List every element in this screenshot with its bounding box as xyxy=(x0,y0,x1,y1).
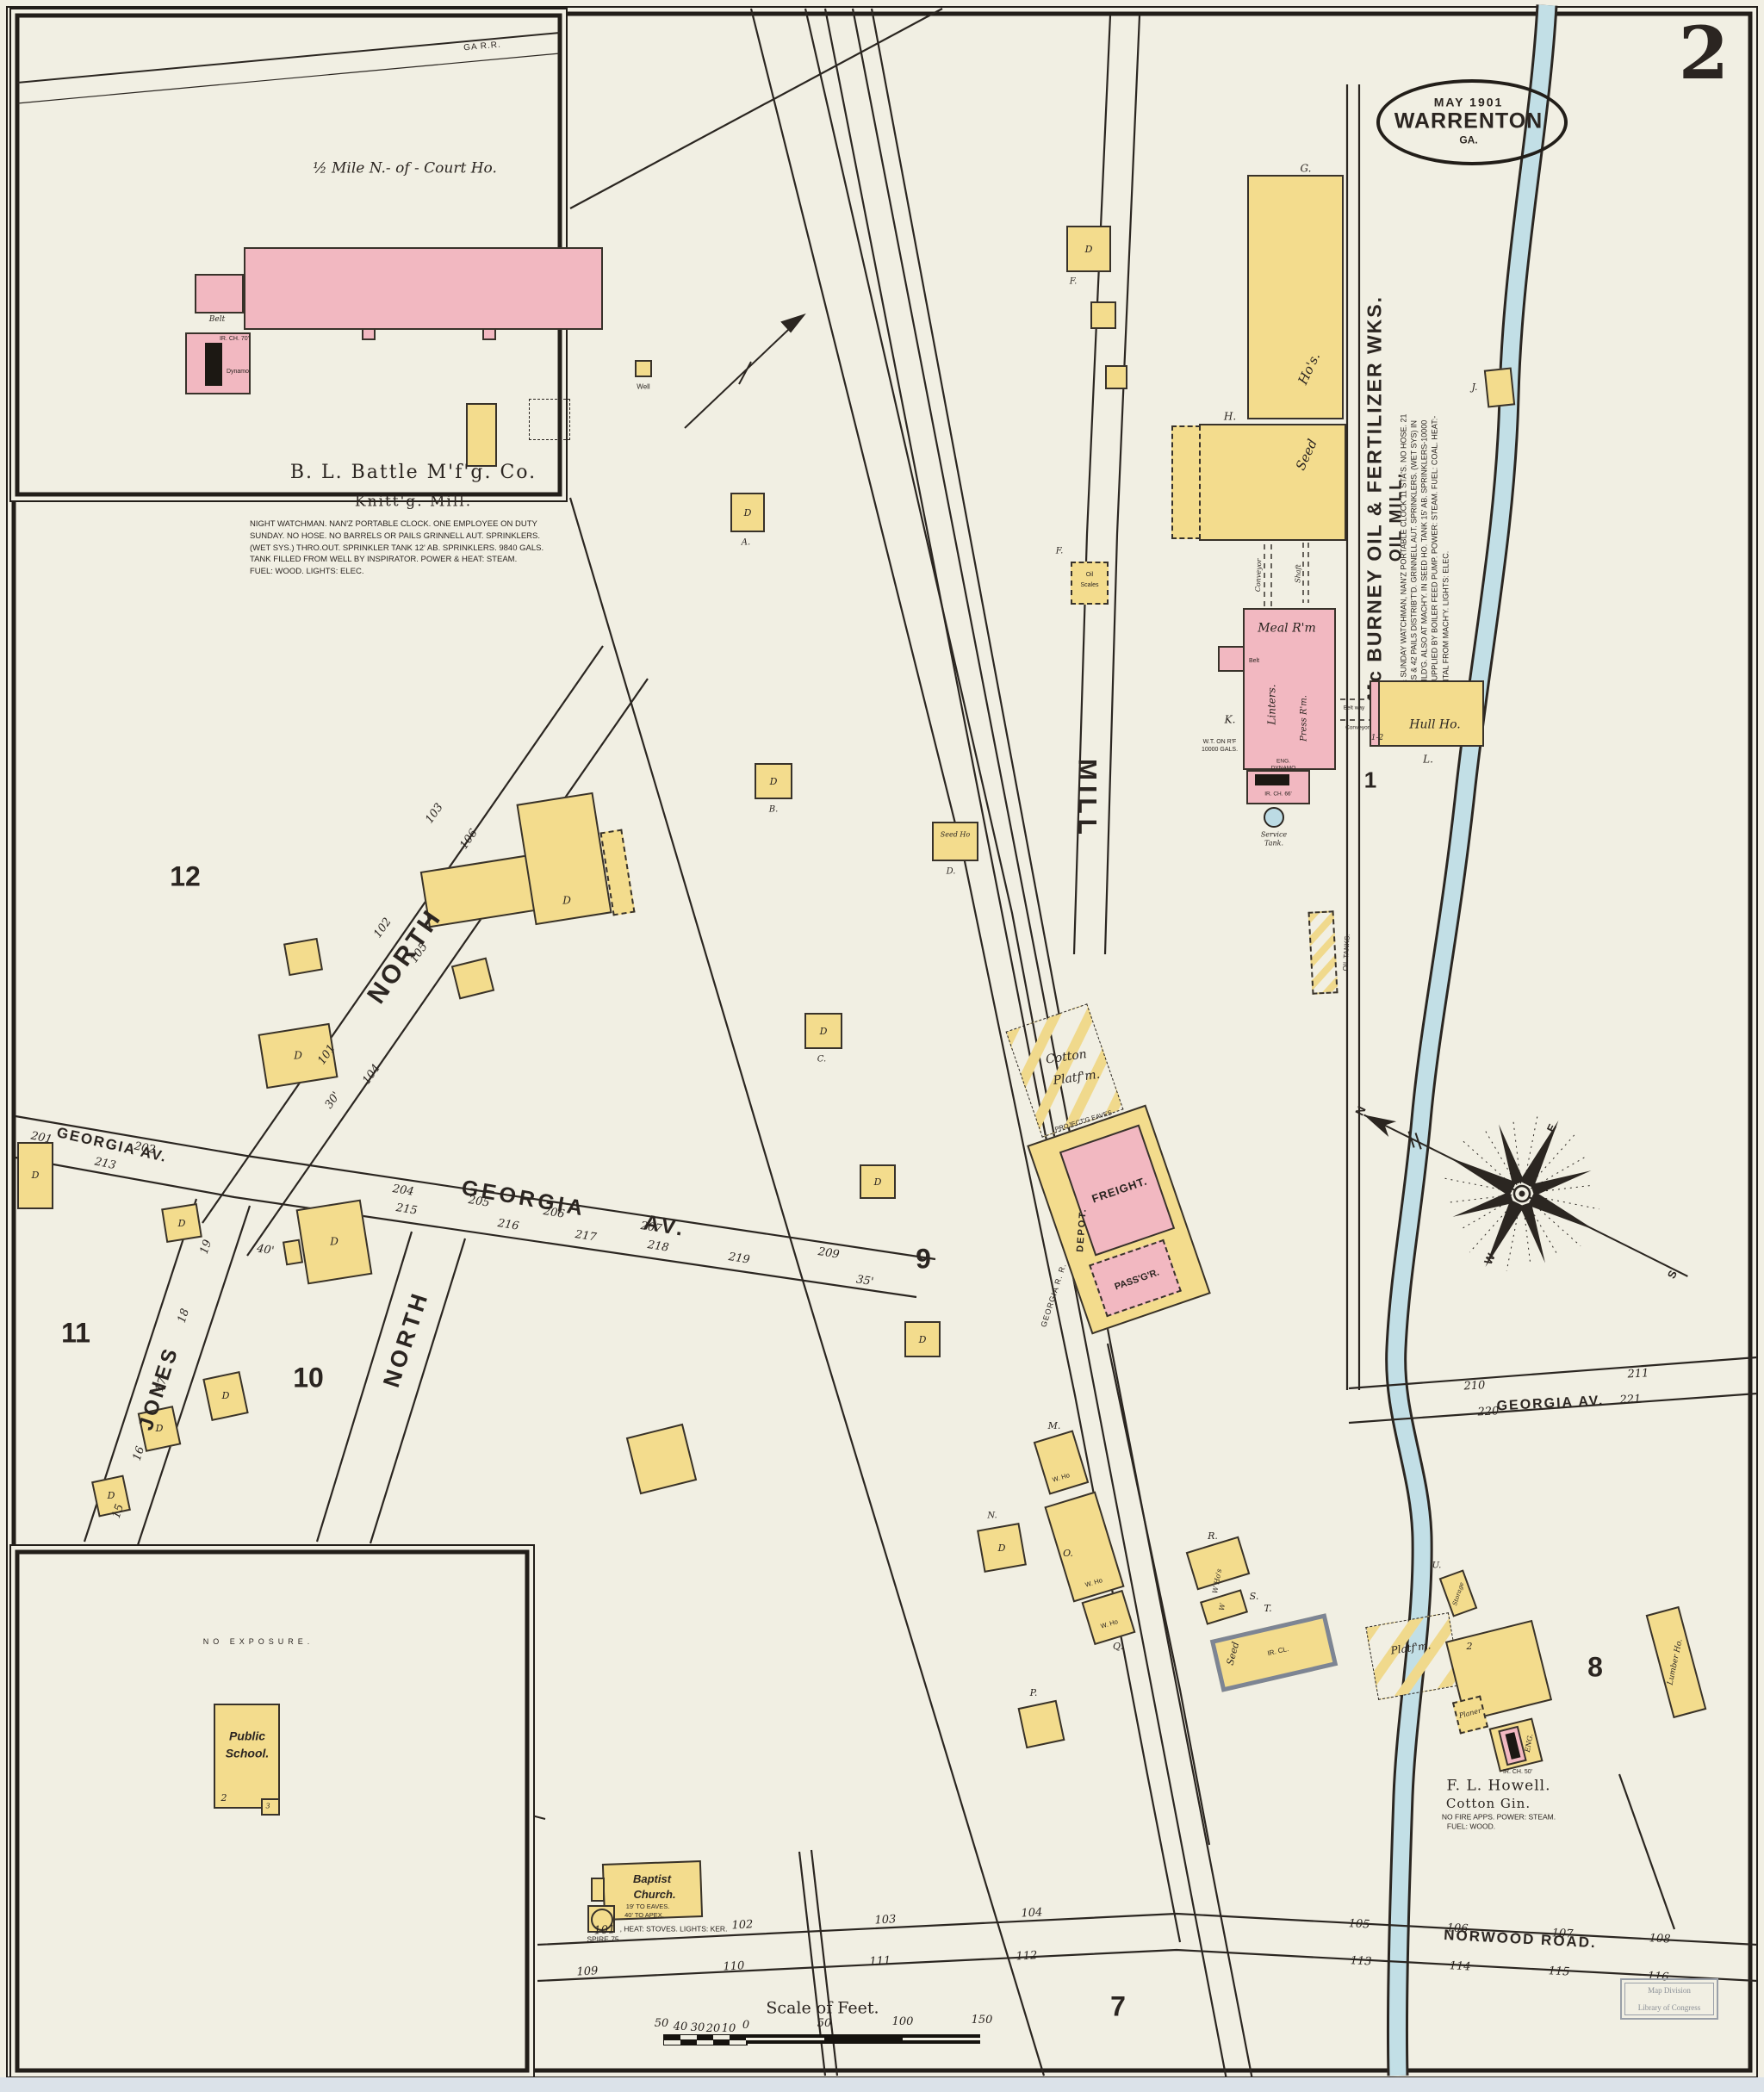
letter-u: U. xyxy=(1432,1561,1442,1571)
street-number: 210 xyxy=(1463,1380,1486,1394)
school-annex-number: 3 xyxy=(265,1803,270,1811)
scale-tick: 150 xyxy=(972,2014,993,2027)
dwelling-letter: D xyxy=(874,1177,882,1188)
howell-business: Cotton Gin. xyxy=(1446,1797,1531,1811)
battle-mill-tab xyxy=(362,328,376,340)
battle-mill-tab xyxy=(482,328,496,340)
street-number: 40' xyxy=(256,1243,275,1257)
building-j xyxy=(1484,367,1515,407)
battle-description-line: TANK FILLED FROM WELL BY INSPIRATOR. POW… xyxy=(250,554,543,566)
street-number: 106 xyxy=(1446,1922,1469,1936)
scale-tick: 50 xyxy=(655,2018,669,2030)
scales-label-1: Oil xyxy=(1086,572,1094,579)
block-number-7: 7 xyxy=(1110,1991,1126,2021)
water-tank-note-2: 10000 GALS. xyxy=(1202,747,1238,754)
outbuilding xyxy=(1090,301,1116,329)
street-number: 113 xyxy=(1350,1955,1372,1969)
church-heat-note: , HEAT: STOVES. LIGHTS: KER. xyxy=(620,1925,728,1933)
letter-d-dot: D. xyxy=(947,867,956,877)
church-name-1: Baptist xyxy=(633,1873,671,1885)
sanborn-map-sheet: GA R.R. ½ Mile N.- of - Court Ho. IR. CH… xyxy=(0,0,1764,2092)
building-battle-mill xyxy=(244,247,603,330)
letter-q: Q. xyxy=(1113,1642,1123,1652)
letter-f: F. xyxy=(1056,547,1064,556)
press-room-label: Press R'm. xyxy=(1300,695,1309,742)
library-stamp xyxy=(1620,1978,1718,2020)
dwelling-letter: D xyxy=(32,1170,40,1181)
letter-m: M. xyxy=(1048,1421,1061,1431)
block-number-1: 1 xyxy=(1364,768,1376,793)
stamp-date: MAY 1901 xyxy=(1434,96,1504,109)
street-number: 221 xyxy=(1619,1394,1642,1407)
dwelling-letter: D xyxy=(1085,245,1093,255)
scale-bar-seg-100-150 xyxy=(903,2034,980,2044)
block-number-12: 12 xyxy=(170,861,201,891)
street-number: 111 xyxy=(869,1955,891,1969)
letter-l: L. xyxy=(1423,754,1433,765)
block-number-10: 10 xyxy=(293,1363,324,1393)
meal-room-label: Meal R'm xyxy=(1258,622,1316,635)
street-number: 110 xyxy=(723,1960,745,1974)
letter-k: K. xyxy=(1225,714,1236,725)
mcburney-description-line: MILL BUILD'G. ALSO AT MACH'Y. IN SEED HO… xyxy=(1419,271,1430,711)
dwelling-letter: D xyxy=(820,1027,828,1037)
dwelling-letter: D xyxy=(998,1543,1006,1554)
street-number: 35' xyxy=(855,1274,874,1288)
dwelling-letter: D xyxy=(222,1391,230,1401)
battle-description: NIGHT WATCHMAN. NAN'Z PORTABLE CLOCK. ON… xyxy=(250,518,543,578)
gin-platform xyxy=(1365,1612,1461,1700)
library-stamp-line2: Library of Congress xyxy=(1638,2004,1700,2013)
battle-outbuilding xyxy=(466,403,497,467)
mcburney-description-line: GALS. SUPPLIED BY BOILER FEED PUMP. POWE… xyxy=(1430,271,1440,711)
dwelling-wing xyxy=(283,1239,303,1266)
building-hull-house xyxy=(1378,680,1484,747)
howell-owner: F. L. Howell. xyxy=(1446,1779,1550,1795)
distance-note: ½ Mile N.- of - Court Ho. xyxy=(313,161,497,177)
letter-t: T. xyxy=(1264,1604,1271,1614)
letter-s: S. xyxy=(1250,1592,1259,1602)
mcburney-company-name: Mc BURNEY OIL & FERTILIZER WKS. xyxy=(1363,295,1385,700)
scale-title: Scale of Feet. xyxy=(766,2000,879,2018)
outbuilding xyxy=(283,938,323,976)
scale-tick: 100 xyxy=(892,2016,914,2028)
scale-bar xyxy=(663,2034,980,2044)
school-number: 2 xyxy=(221,1793,227,1803)
block-number-11: 11 xyxy=(61,1318,90,1348)
mcburney-description-line: INCIDENTAL FROM MACH'Y. LIGHTS: ELEC. xyxy=(1440,271,1450,711)
scale-tick: 50 xyxy=(817,2018,832,2030)
school-name-2: School. xyxy=(226,1747,270,1760)
stamp-city: WARRENTON xyxy=(1394,109,1543,133)
scale-tick: 20 xyxy=(706,2023,721,2035)
letter-a: A. xyxy=(742,538,750,548)
engine-label: ENG. xyxy=(1276,758,1290,764)
library-stamp-line1: Map Division xyxy=(1648,1987,1691,1996)
scales-label-2: Scales xyxy=(1080,582,1098,589)
well-house xyxy=(635,360,652,377)
sheet-number: 2 xyxy=(1679,14,1729,93)
ironclad-50-label: IR. CH. 50' xyxy=(1503,1769,1532,1776)
letter-n: N. xyxy=(987,1512,997,1521)
school-annex xyxy=(261,1798,280,1816)
church-apex-note: 40' TO APEX. xyxy=(624,1912,664,1919)
battle-business-type: Knitt'g. Mill. xyxy=(355,494,472,511)
letter-c: C. xyxy=(817,1055,826,1065)
mill-belt-label: Belt xyxy=(1249,658,1259,665)
battle-ironclad-label: IR. CH. 70' xyxy=(220,336,249,343)
outbuilding xyxy=(1105,365,1127,389)
scale-bar-seg-0-50 xyxy=(746,2034,824,2044)
battle-mill-annex xyxy=(195,274,244,313)
scale-tick: 30 xyxy=(691,2022,705,2034)
dwelling-letter: D xyxy=(770,777,778,787)
conveyor-label: Conveyor xyxy=(1255,559,1264,593)
dwelling-letter: D xyxy=(108,1491,115,1501)
street-label-mill: MILL xyxy=(1073,759,1102,840)
scale-tick: 0 xyxy=(742,2020,749,2032)
street-number: 112 xyxy=(1016,1950,1038,1964)
street-number: 115 xyxy=(1548,1965,1570,1979)
oil-mill-boiler xyxy=(1255,774,1289,785)
letter-p: P. xyxy=(1030,1688,1038,1698)
building-seed-house-small xyxy=(932,822,978,861)
mcburney-description-line: BARRELS & 42 PAILS DISTRIB'T'D. GRINNELL… xyxy=(1409,271,1419,711)
letter-g: G. xyxy=(1301,163,1312,174)
beltway-label: Belt way xyxy=(1344,705,1365,711)
mcburney-description-line: NIGHT & SUNDAY WATCHMAN, NAN'Z PORTABLE … xyxy=(1399,271,1409,711)
no-exposure-note: NO EXPOSURE. xyxy=(203,1638,314,1647)
linters-label: Linters. xyxy=(1266,684,1277,724)
church-name-2: Church. xyxy=(633,1889,675,1901)
tank-enclosure xyxy=(529,399,570,440)
battle-description-line: SUNDAY. NO HOSE. NO BARRELS OR PAILS GRI… xyxy=(250,531,543,543)
building-warehouse-p xyxy=(1018,1700,1065,1749)
school-name-1: Public xyxy=(229,1729,265,1742)
battle-description-line: NIGHT WATCHMAN. NAN'Z PORTABLE CLOCK. ON… xyxy=(250,518,543,531)
street-number: 211 xyxy=(1627,1368,1649,1381)
water-tank-note-1: W.T. ON R'F xyxy=(1203,739,1237,746)
scale-bar-seg-50-100 xyxy=(824,2034,903,2044)
street-number: 107 xyxy=(1551,1927,1574,1941)
scale-tick: 10 xyxy=(722,2023,736,2035)
howell-detail-2: FUEL: WOOD. xyxy=(1447,1822,1495,1830)
battle-company-name: B. L. Battle M'f'g. Co. xyxy=(290,462,537,483)
building-seed-house-h xyxy=(1199,424,1346,541)
battle-description-line: (WET SYS.) THRO.OUT. SPRINKLER TANK 12' … xyxy=(250,543,543,555)
dwelling-letter: D xyxy=(294,1050,302,1061)
ironclad-66-label: IR. CH. 66' xyxy=(1264,791,1292,797)
battle-description-line: FUEL: WOOD. LIGHTS: ELEC. xyxy=(250,566,543,578)
church-annex xyxy=(591,1878,605,1902)
street-number: 104 xyxy=(1021,1907,1043,1921)
service-tank-label-2: Tank. xyxy=(1264,841,1283,848)
hull-house-label: Hull Ho. xyxy=(1409,718,1460,731)
street-number: 102 xyxy=(731,1919,754,1933)
street-number: 109 xyxy=(576,1965,599,1979)
oil-tanks-enclosure xyxy=(1308,910,1339,994)
battle-dynamo-label: Dynamo xyxy=(227,369,249,376)
gin-number: 2 xyxy=(1467,1642,1473,1652)
dwelling-letter: D xyxy=(178,1219,186,1229)
battle-boiler xyxy=(205,343,222,386)
street-number: 108 xyxy=(1649,1933,1671,1946)
street-number: 220 xyxy=(1477,1406,1500,1419)
stamp-state: GA. xyxy=(1459,134,1477,146)
dwelling-letter: D xyxy=(330,1236,339,1247)
scale-bar-checker-bottom xyxy=(663,2039,748,2045)
dwelling-letter: D xyxy=(744,508,752,518)
block-number-9: 9 xyxy=(916,1244,931,1274)
letter-j: J. xyxy=(1471,382,1477,393)
dwelling-letter: D xyxy=(562,895,571,906)
letter-o: O. xyxy=(1063,1549,1073,1559)
street-number: 101 xyxy=(593,1924,616,1938)
letter-f: F. xyxy=(1070,277,1078,287)
warehouse-w-label: W xyxy=(1219,1603,1227,1611)
letter-h: H. xyxy=(1224,411,1236,422)
dwelling-letter: D xyxy=(919,1335,927,1345)
block-number-8: 8 xyxy=(1587,1652,1603,1682)
mcburney-description: NIGHT & SUNDAY WATCHMAN, NAN'Z PORTABLE … xyxy=(1399,271,1451,711)
street-number: 114 xyxy=(1449,1960,1471,1974)
oil-mill-annex xyxy=(1218,646,1245,672)
hull-one-two: 1-2 xyxy=(1371,735,1384,743)
street-number: 103 xyxy=(874,1914,897,1927)
letter-b: B. xyxy=(769,805,779,815)
scan-edge xyxy=(0,2077,1764,2092)
church-eaves-note: 19' TO EAVES. xyxy=(626,1903,670,1910)
scale-tick: 40 xyxy=(674,2021,688,2033)
shaft-label: Shaft xyxy=(1295,564,1303,583)
well-label: Well xyxy=(637,384,649,392)
building-seed-house-g xyxy=(1247,175,1344,419)
letter-r: R. xyxy=(1208,1531,1218,1542)
seed-house-h-shed xyxy=(1171,425,1201,539)
street-number: 105 xyxy=(1348,1918,1370,1932)
conveyor2-label: Conveyor xyxy=(1345,724,1370,730)
battle-belt-label: Belt xyxy=(209,316,225,325)
service-tank-label-1: Service xyxy=(1261,832,1287,840)
howell-detail-1: NO FIRE APPS. POWER: STEAM. xyxy=(1442,1813,1556,1821)
seed-ho-label: Seed Ho xyxy=(941,832,970,840)
